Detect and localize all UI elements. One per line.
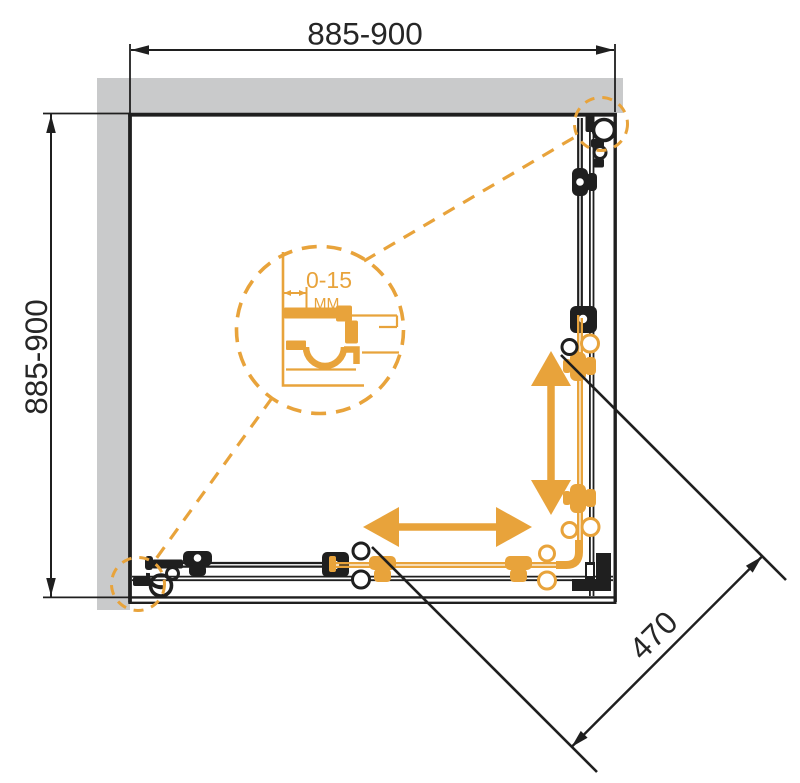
roller-bracket bbox=[505, 556, 532, 570]
slide-arrow-vertical-icon bbox=[531, 351, 571, 515]
depth-dimension-label: 885-900 bbox=[18, 299, 54, 415]
roller-arc bbox=[306, 347, 344, 366]
door-knob bbox=[540, 546, 555, 561]
adjustment-unit-label: MM bbox=[314, 296, 340, 313]
door-knob bbox=[582, 335, 599, 352]
door-corner-elbow bbox=[556, 540, 579, 565]
door-knob bbox=[582, 519, 599, 536]
technical-drawing-canvas: 885-900 885-900 bbox=[0, 0, 800, 783]
door-end-cap bbox=[329, 556, 336, 572]
extension-line bbox=[561, 355, 786, 580]
slide-arrow-horizontal-icon bbox=[363, 507, 532, 547]
door-knob bbox=[353, 571, 370, 588]
slide-arrows bbox=[363, 351, 571, 547]
roller-bracket bbox=[570, 484, 586, 513]
entry-diagonal-label: 470 bbox=[622, 604, 685, 667]
adjustment-range-label: 0-15 bbox=[306, 267, 352, 293]
wall-top bbox=[97, 78, 623, 113]
door-knob bbox=[353, 543, 369, 559]
width-dimension-label: 885-900 bbox=[307, 16, 423, 52]
leader-line bbox=[153, 398, 272, 563]
arrowhead-right bbox=[596, 45, 614, 55]
door-knob bbox=[562, 340, 577, 355]
door-knob bbox=[539, 572, 556, 589]
leader-line bbox=[364, 134, 580, 261]
arrowhead-top bbox=[46, 115, 56, 133]
arrowhead-left bbox=[131, 45, 149, 55]
wall-left bbox=[97, 78, 130, 610]
door-knob bbox=[562, 523, 577, 538]
arrowhead-bottom bbox=[46, 578, 56, 596]
shower-enclosure-plan-drawing: 885-900 885-900 bbox=[0, 0, 800, 783]
